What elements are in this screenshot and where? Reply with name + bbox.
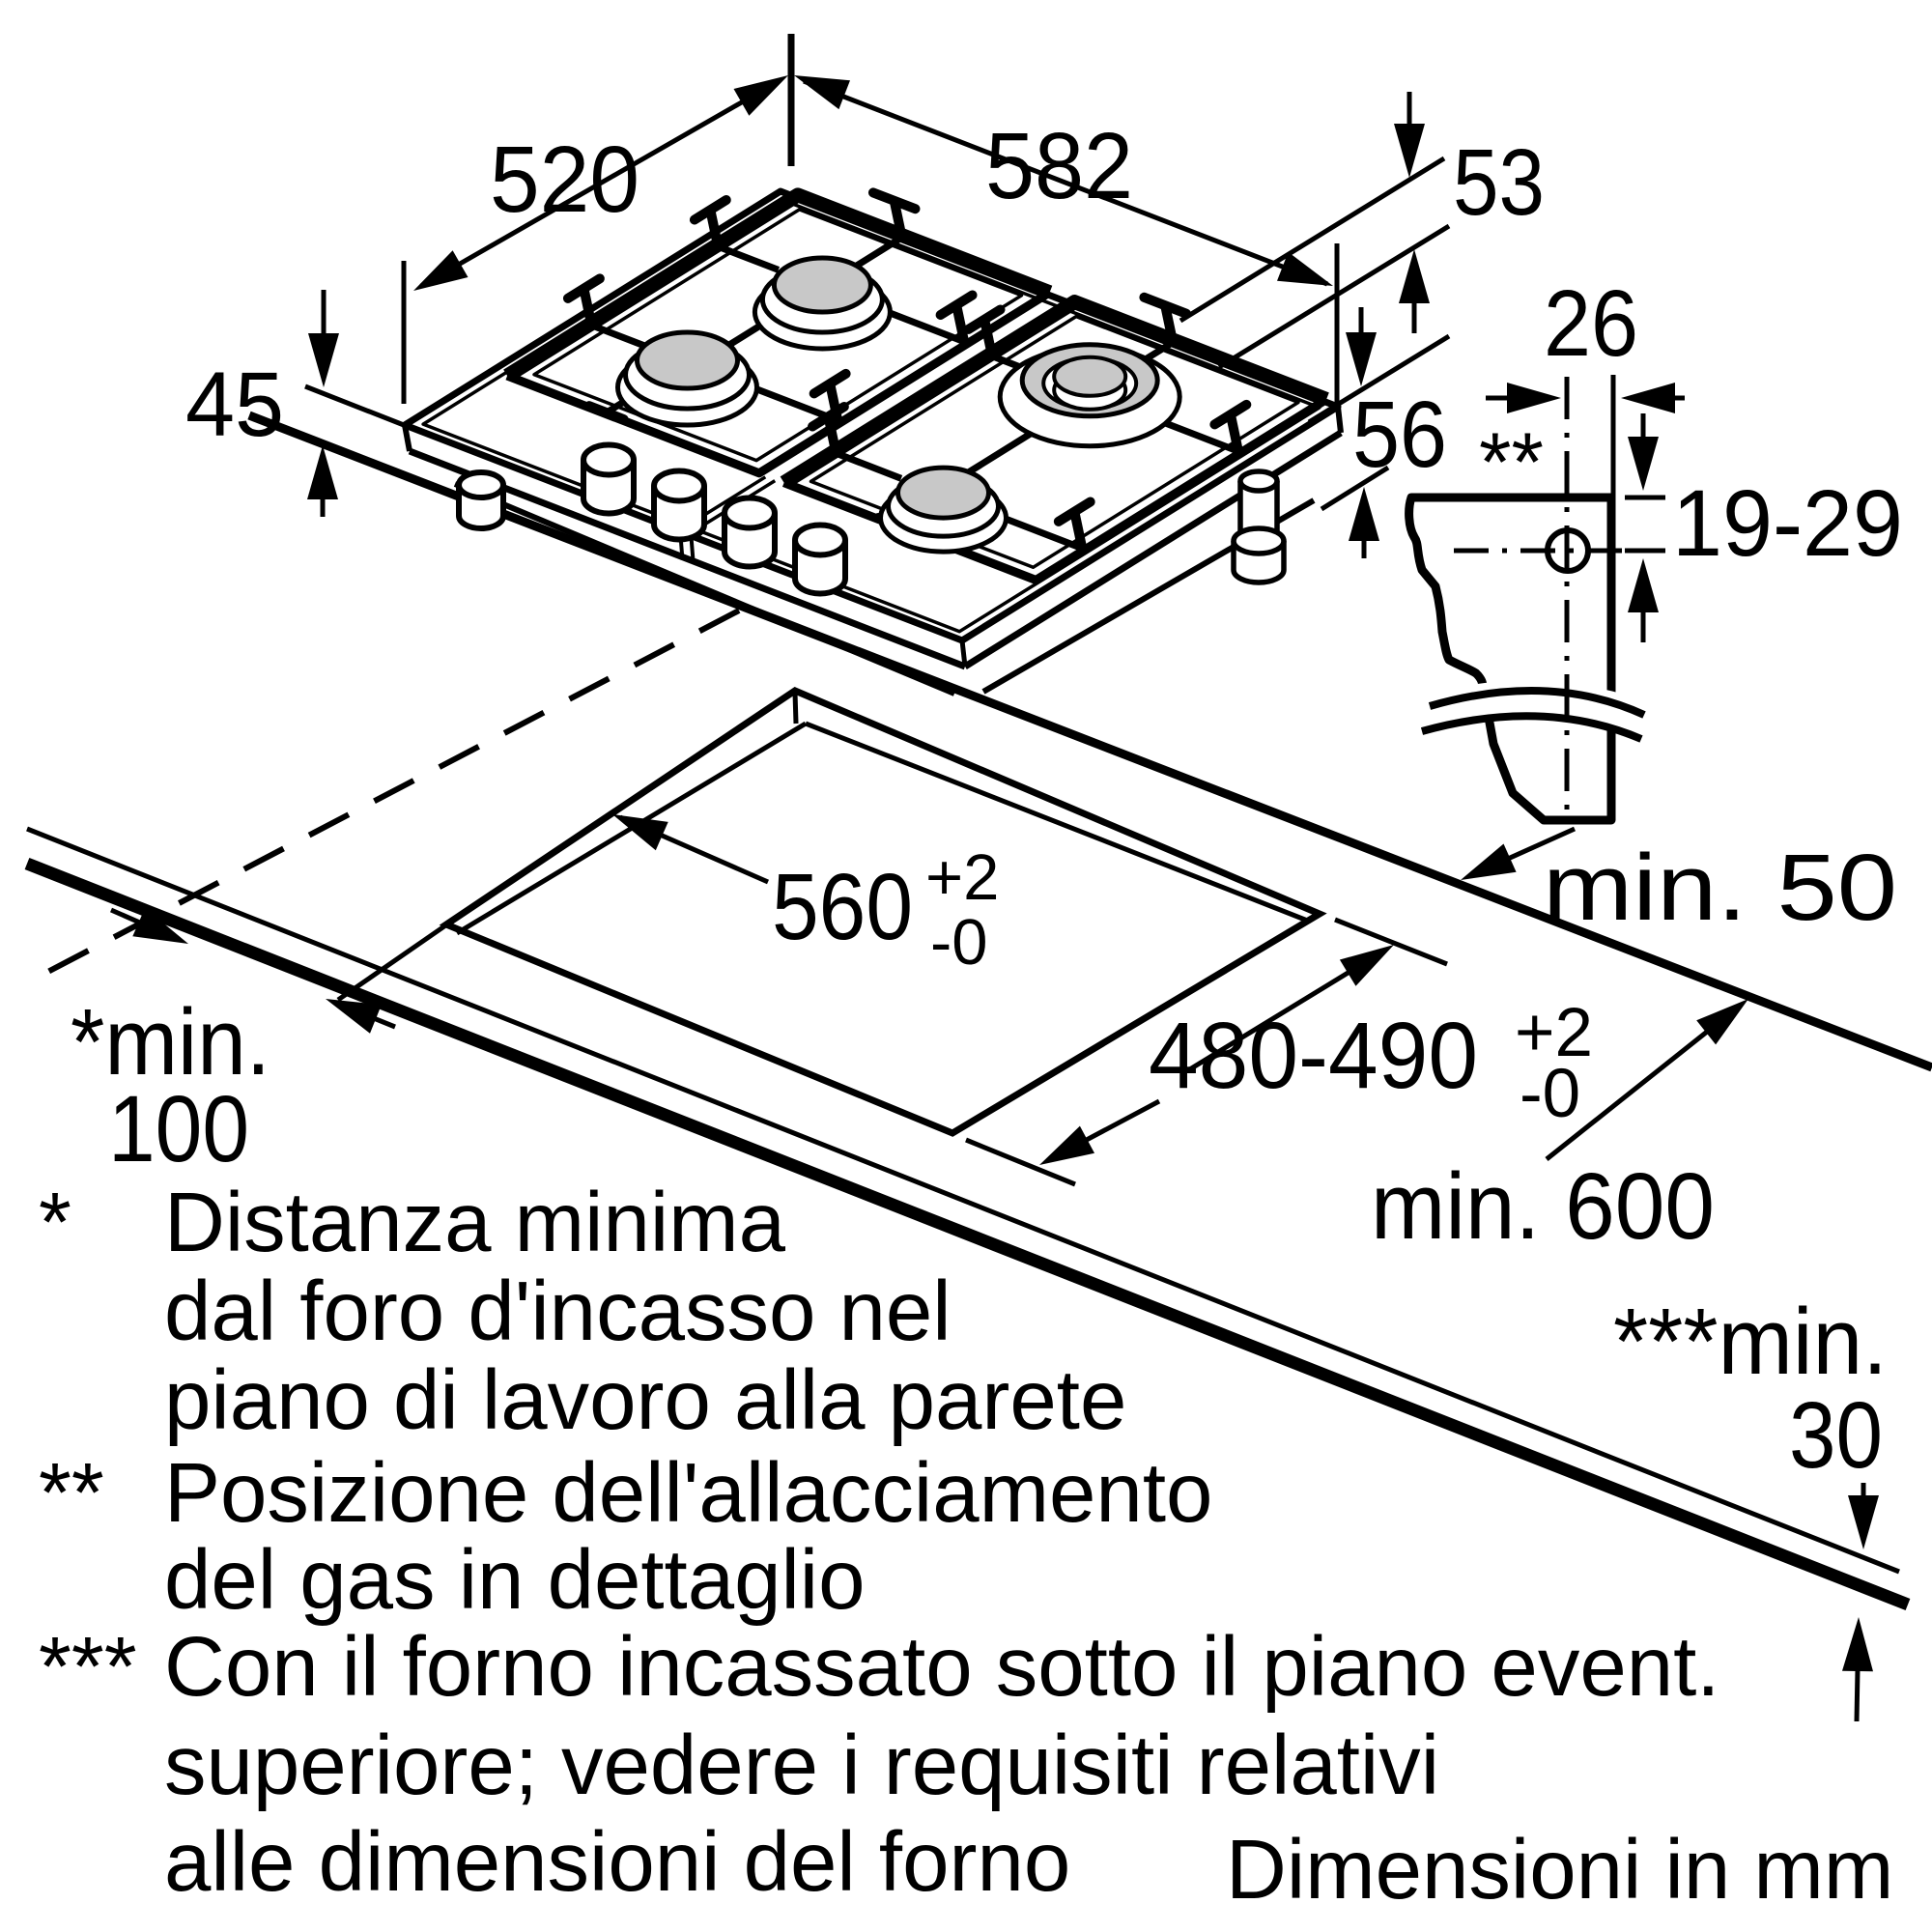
svg-text:100: 100 — [108, 1076, 249, 1181]
svg-text:520: 520 — [490, 127, 639, 232]
svg-text:min. 50: min. 50 — [1543, 835, 1897, 940]
svg-text:**: ** — [1479, 416, 1544, 509]
svg-text:**: ** — [39, 1446, 104, 1540]
svg-text:min. 600: min. 600 — [1371, 1153, 1715, 1259]
svg-text:del gas in dettaglio: del gas in dettaglio — [164, 1533, 866, 1627]
svg-text:19-29: 19-29 — [1672, 470, 1903, 576]
svg-text:26: 26 — [1544, 270, 1638, 376]
svg-text:+2: +2 — [925, 841, 999, 914]
svg-text:-0: -0 — [1520, 1056, 1580, 1132]
svg-text:*: * — [39, 1176, 71, 1269]
svg-text:piano di lavoro alla parete: piano di lavoro alla parete — [164, 1353, 1126, 1447]
svg-text:-0: -0 — [930, 906, 988, 979]
svg-text:Posizione dell'allacciamento: Posizione dell'allacciamento — [164, 1446, 1212, 1540]
svg-text:30: 30 — [1789, 1382, 1883, 1488]
svg-text:53: 53 — [1453, 129, 1545, 235]
svg-text:56: 56 — [1352, 382, 1447, 487]
svg-text:45: 45 — [185, 354, 284, 456]
svg-text:560: 560 — [772, 854, 913, 959]
svg-text:alle dimensioni del forno: alle dimensioni del forno — [164, 1815, 1070, 1909]
svg-text:superiore; vedere i requisiti: superiore; vedere i requisiti relativi — [164, 1719, 1439, 1812]
svg-text:582: 582 — [985, 113, 1133, 218]
svg-text:480-490: 480-490 — [1149, 1003, 1478, 1108]
svg-text:dal foro d'incasso nel: dal foro d'incasso nel — [164, 1264, 952, 1358]
svg-text:***min.: ***min. — [1613, 1289, 1888, 1394]
svg-text:Dimensioni in mm: Dimensioni in mm — [1226, 1823, 1893, 1917]
svg-text:Distanza minima: Distanza minima — [164, 1176, 786, 1269]
svg-text:Con il forno incassato sotto i: Con il forno incassato sotto il piano ev… — [164, 1620, 1719, 1714]
svg-text:***: *** — [39, 1620, 137, 1714]
